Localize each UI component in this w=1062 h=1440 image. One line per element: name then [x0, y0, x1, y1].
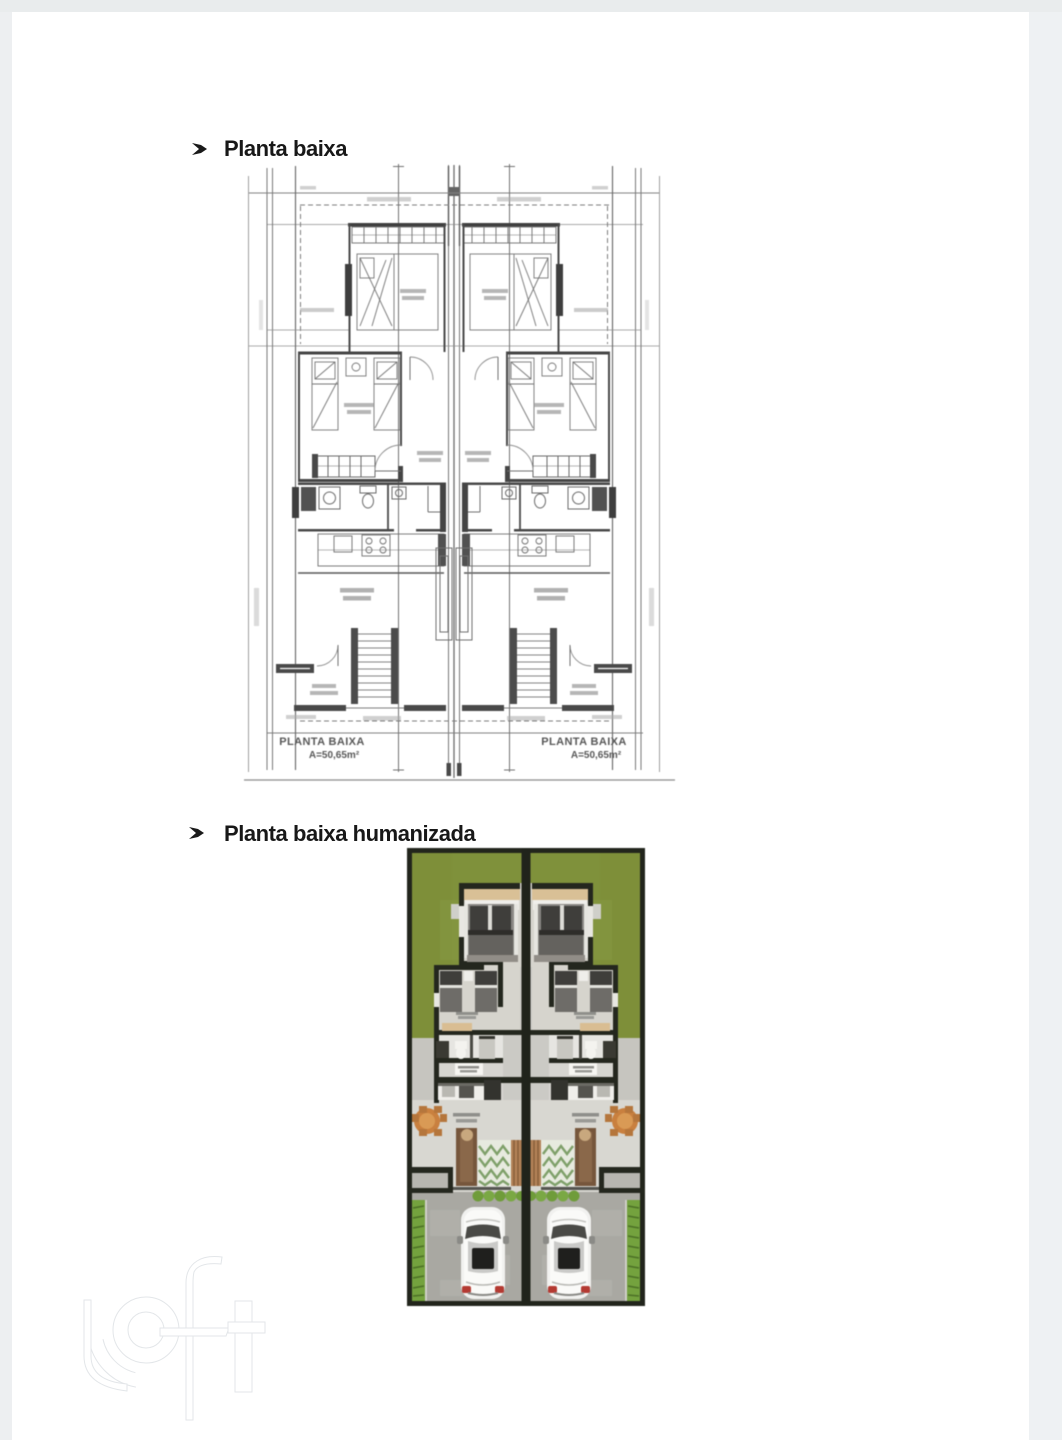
svg-text:A=50,65m²: A=50,65m²	[571, 750, 622, 761]
svg-text:A=50,65m²: A=50,65m²	[309, 750, 360, 761]
svg-text:PLANTA BAIXA: PLANTA BAIXA	[541, 736, 626, 748]
svg-text:PLANTA BAIXA: PLANTA BAIXA	[279, 736, 364, 748]
